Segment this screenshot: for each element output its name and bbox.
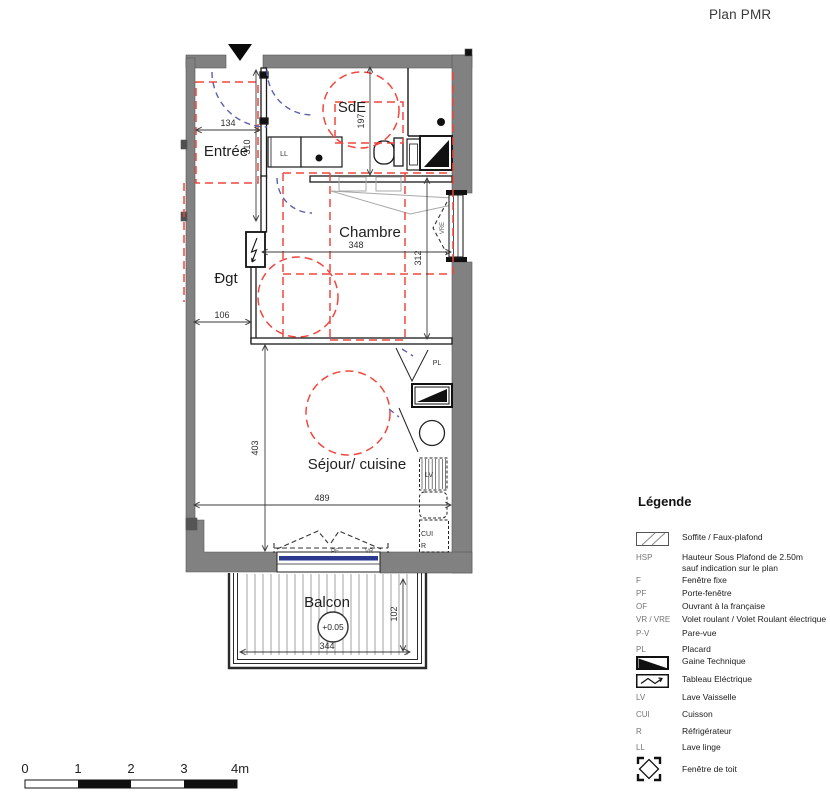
fridge-label: R (421, 543, 426, 550)
legend-title: Légende (638, 494, 691, 509)
legend-item-cui: CUI Cuisson (636, 709, 830, 720)
legend-label: Fenêtre fixe (682, 575, 727, 586)
kitchen-fixtures (396, 348, 452, 552)
svg-text:403: 403 (250, 440, 260, 455)
soffite-symbol-icon (636, 532, 682, 551)
legend-item-r: R Réfrigérateur (636, 726, 830, 737)
room-label-chambre: Chambre (339, 224, 401, 241)
room-label-entree: Entrée (204, 143, 248, 160)
bedroom-window: VRE (433, 190, 467, 262)
legend-label: Pare-vue (682, 628, 717, 639)
legend-label: Lave Vaisselle (682, 692, 736, 703)
scale-tick-4: 4m (231, 761, 249, 776)
entrance-arrow-icon (228, 44, 252, 61)
legend-item-soffite: Soffite / Faux-plafond (636, 532, 830, 551)
svg-text:312: 312 (413, 250, 423, 265)
door-swing-arcs (212, 70, 413, 417)
closet-label: PL (433, 360, 442, 367)
scale-tick-0: 0 (21, 761, 28, 776)
room-label-balcon: Balcon (304, 594, 350, 611)
dishwasher-label: LV (425, 472, 433, 479)
balcony-door: PF VR (274, 531, 388, 572)
legend-code: PF (636, 588, 682, 598)
legend-label: Cuisson (682, 709, 713, 720)
washing-machine-label: LL (280, 151, 288, 158)
legend-code: F (636, 575, 682, 585)
legend-label: Porte-fenêtre (682, 588, 732, 599)
legend-item-pf: PF Porte-fenêtre (636, 588, 830, 599)
room-label-sejour: Séjour/ cuisine (308, 456, 406, 473)
balcony-door-label: PF (331, 549, 339, 555)
shutter-label: VR (365, 549, 374, 555)
legend-code: P-V (636, 628, 682, 638)
legend-item-vr-vre: VR / VRE Volet roulant / Volet Roulant é… (636, 614, 830, 625)
bedroom-door-swing (277, 178, 312, 213)
room-label-dgt: Ðgt (214, 270, 238, 287)
legend-item-tableau: Tableau Eléctrique (636, 674, 830, 693)
legend-label: Placard (682, 644, 711, 655)
svg-text:102: 102 (389, 606, 399, 621)
dishwasher (420, 458, 448, 490)
room-label-sde: SdE (338, 99, 366, 116)
fenetre-de-toit-symbol-icon (636, 756, 682, 787)
svg-text:348: 348 (348, 240, 363, 250)
legend-code: PL (636, 644, 682, 654)
closet-doors (396, 348, 428, 381)
legend-code: LV (636, 692, 682, 702)
legend-item-pl: PL Placard (636, 644, 830, 655)
legend-label: Hauteur Sous Plafond de 2.50m sauf indic… (682, 552, 803, 574)
floor-plan-page: { "title": "Plan PMR", "plan": { "rooms"… (0, 0, 830, 800)
washbasin (301, 137, 342, 167)
legend-label-line1: Hauteur Sous Plafond de 2.50m (682, 552, 803, 562)
legend-item-hsp: HSP Hauteur Sous Plafond de 2.50m sauf i… (636, 552, 830, 574)
legend-code: CUI (636, 709, 682, 719)
tableau-electrique (246, 232, 265, 267)
legend-code: LL (636, 742, 682, 752)
svg-text:344: 344 (319, 641, 334, 651)
scale-tick-1: 1 (74, 761, 81, 776)
legend-item-pv: P-V Pare-vue (636, 628, 830, 639)
toilet-tank (394, 138, 403, 166)
tableau-electrique-symbol-icon (636, 674, 682, 693)
legend-label: Réfrigérateur (682, 726, 732, 737)
sde-door-swing (267, 70, 312, 115)
legend-item-of: OF Ouvrant à la française (636, 601, 830, 612)
cooktop-label: CUI (421, 531, 433, 538)
legend-label: Ouvrant à la française (682, 601, 765, 612)
legend-label: Fenêtre de toit (682, 756, 737, 775)
legend-code: OF (636, 601, 682, 611)
legend-label: Lave linge (682, 742, 721, 753)
legend-item-f: F Fenêtre fixe (636, 575, 830, 586)
scale-bar: 0 1 2 3 4m (21, 761, 249, 788)
legend-label: Gaine Technique (682, 656, 746, 667)
legend-label: Volet roulant / Volet Roulant électrique (682, 614, 826, 625)
svg-text:134: 134 (220, 118, 235, 128)
wall-corner-tick (465, 49, 472, 56)
legend-item-gaine: Gaine Technique (636, 656, 830, 675)
svg-text:106: 106 (214, 310, 229, 320)
legend-code: HSP (636, 552, 682, 562)
scale-tick-2: 2 (127, 761, 134, 776)
legend-code: R (636, 726, 682, 736)
window-shutter-label: VRE (440, 222, 446, 234)
legend-item-fenetre-toit: Fenêtre de toit (636, 756, 830, 787)
legend-item-lv: LV Lave Vaisselle (636, 692, 830, 703)
scale-tick-3: 3 (180, 761, 187, 776)
svg-text:489: 489 (314, 493, 329, 503)
gaine-technique-symbol-icon (636, 656, 682, 675)
legend: Légende Soffite / Faux-plafond HSP Haute… (636, 492, 830, 792)
kitchen-sink (420, 421, 445, 446)
shower-drain (437, 118, 445, 126)
legend-label: Soffite / Faux-plafond (682, 532, 763, 543)
glazing-line (279, 556, 378, 561)
legend-label-line2: sauf indication sur le plan (682, 563, 778, 573)
legend-label: Tableau Eléctrique (682, 674, 752, 685)
legend-item-ll: LL Lave linge (636, 742, 830, 753)
legend-code: VR / VRE (636, 614, 682, 624)
level-value: +0.05 (322, 622, 344, 632)
